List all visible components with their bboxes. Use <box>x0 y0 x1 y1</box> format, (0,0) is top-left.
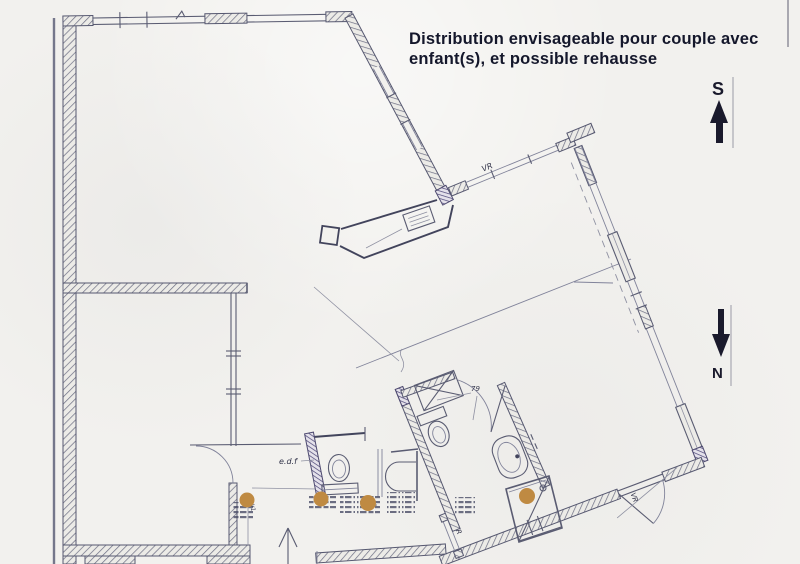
plumbing-dot <box>519 488 535 504</box>
corner-block-northeast <box>567 123 595 142</box>
wall-diagonal-northeast <box>344 13 454 205</box>
wall-middle-divider <box>63 283 247 293</box>
label-edf: e.d.f <box>279 457 298 466</box>
plumbing-dot <box>314 492 329 507</box>
compass-north: N <box>712 305 731 386</box>
wall-bottom-left <box>63 545 250 564</box>
arrow-up-icon <box>710 100 728 143</box>
bathroom-door-leaf <box>491 386 505 432</box>
wall-bottom-exterior: VR <box>438 455 717 564</box>
bathroom-wall-top <box>401 372 455 397</box>
compass-south-label: S <box>712 79 724 99</box>
wall-right-exterior <box>567 145 709 467</box>
scanned-floor-plan-page: Distribution envisageable pour couple av… <box>0 0 800 564</box>
dimension-79: 79 <box>437 385 480 420</box>
door-swing-arc <box>196 446 233 483</box>
scan-artifacts <box>54 0 788 564</box>
wall-bottom-cutoff <box>316 544 446 563</box>
plumbing-dot <box>240 493 255 508</box>
label-dim-79: 79 <box>471 385 480 393</box>
label-vr-entry: VR <box>629 492 640 504</box>
compass-north-label: N <box>712 365 723 382</box>
roof-overhang-dashed <box>571 163 638 333</box>
arrow-down-icon <box>712 309 730 357</box>
bay-post <box>320 226 339 245</box>
bay-annex <box>320 200 453 258</box>
direction-arrow-up <box>279 528 317 564</box>
floor-plan-drawing: VR <box>0 0 800 564</box>
wall-top-exterior <box>63 8 352 29</box>
wc-toilet-icon <box>320 454 358 495</box>
plumbing-dot <box>360 495 376 511</box>
compass-south: S <box>710 77 733 148</box>
partition-lines <box>314 259 631 372</box>
wc-wall-left <box>305 432 326 497</box>
edf-annotation: e.d.f <box>279 457 314 466</box>
window-wall-top: VR <box>445 129 576 197</box>
left-wing-walls <box>63 8 352 564</box>
